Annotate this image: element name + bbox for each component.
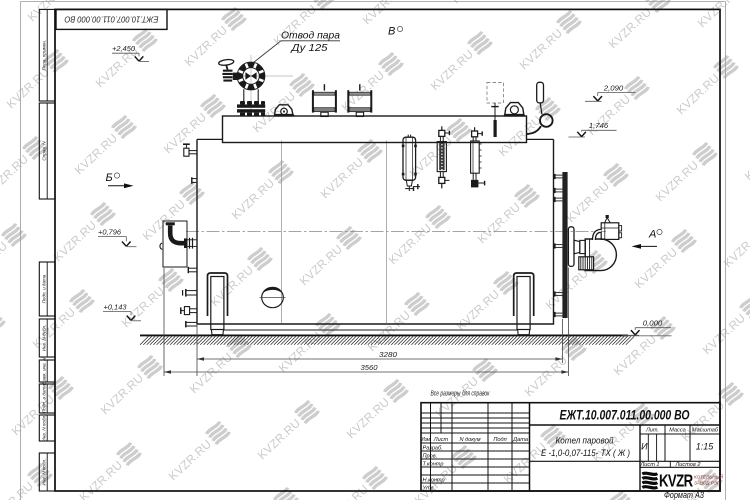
svg-text:KVZR.RU: KVZR.RU xyxy=(187,350,235,397)
svg-text:KVZR.RU: KVZR.RU xyxy=(140,197,188,244)
svg-text:В: В xyxy=(388,26,395,38)
svg-text:KVZR.RU: KVZR.RU xyxy=(653,158,701,205)
svg-text:Пров.: Пров. xyxy=(423,453,438,459)
svg-text:KVZR.RU: KVZR.RU xyxy=(632,245,680,292)
svg-text:KVZR.RU: KVZR.RU xyxy=(522,353,570,400)
svg-text:ЗАВОД РЭП: ЗАВОД РЭП xyxy=(694,481,721,486)
svg-text:Подп: Подп xyxy=(493,437,506,443)
svg-text:Листов 2: Листов 2 xyxy=(674,462,701,468)
svg-text:2,090: 2,090 xyxy=(603,83,624,92)
svg-text:Отвод пара: Отвод пара xyxy=(281,30,340,42)
svg-text:Б: Б xyxy=(106,172,113,184)
svg-text:N докум: N докум xyxy=(459,437,480,443)
svg-text:KVZR.RU: KVZR.RU xyxy=(674,71,722,118)
svg-text:KVZR.RU: KVZR.RU xyxy=(517,26,565,73)
svg-text:KVZR.RU: KVZR.RU xyxy=(4,65,52,112)
svg-text:Перв. примен.: Перв. примен. xyxy=(41,40,46,71)
svg-text:Инв. N подл.: Инв. N подл. xyxy=(41,415,46,442)
svg-text:+0,796: +0,796 xyxy=(98,227,122,236)
svg-text:KVZR.RU: KVZR.RU xyxy=(182,23,230,70)
svg-text:Лист: Лист xyxy=(433,437,449,443)
svg-text:KVZR.RU: KVZR.RU xyxy=(386,221,434,268)
svg-text:KVZR.RU: KVZR.RU xyxy=(51,218,99,265)
svg-text:Н.контр: Н.контр xyxy=(423,477,445,483)
svg-text:KVZR.RU: KVZR.RU xyxy=(255,416,303,463)
svg-text:Лит.: Лит. xyxy=(645,428,659,434)
svg-text:KVZR.RU: KVZR.RU xyxy=(360,0,408,27)
svg-text:KVZR.RU: KVZR.RU xyxy=(449,0,497,6)
svg-text:KVZR.RU: KVZR.RU xyxy=(475,200,523,247)
svg-text:Подп. и дата: Подп. и дата xyxy=(41,274,46,303)
svg-text:Формат А3: Формат А3 xyxy=(664,490,704,500)
svg-text:KVZR.RU: KVZR.RU xyxy=(229,176,277,223)
svg-text:KVZR.RU: KVZR.RU xyxy=(501,440,549,487)
svg-text:KVZR.RU: KVZR.RU xyxy=(585,92,633,139)
svg-text:КОТЕЛЬНЫЙ: КОТЕЛЬНЫЙ xyxy=(694,473,724,480)
svg-text:KVZR: KVZR xyxy=(659,471,693,491)
svg-text:Дата: Дата xyxy=(512,437,528,443)
svg-text:Справ. N: Справ. N xyxy=(41,141,46,161)
svg-text:KVZR.RU: KVZR.RU xyxy=(77,458,125,500)
svg-text:KVZR.RU: KVZR.RU xyxy=(98,371,146,418)
svg-text:KVZR.RU: KVZR.RU xyxy=(318,155,366,202)
svg-text:KVZR.RU: KVZR.RU xyxy=(166,437,214,484)
svg-text:ЕЖТ.10.007.011.00.000 ВО: ЕЖТ.10.007.011.00.000 ВО xyxy=(64,15,158,25)
svg-text:KVZR.RU: KVZR.RU xyxy=(695,0,743,30)
svg-text:KVZR.RU: KVZR.RU xyxy=(564,179,612,226)
svg-text:3280: 3280 xyxy=(379,350,397,359)
svg-text:Лист 1: Лист 1 xyxy=(639,462,659,468)
svg-text:Ду 125: Ду 125 xyxy=(290,42,327,54)
svg-text:KVZR.RU: KVZR.RU xyxy=(0,152,31,199)
svg-text:KVZR.RU: KVZR.RU xyxy=(344,395,392,442)
svg-text:3560: 3560 xyxy=(361,363,378,372)
svg-text:Инв. N подл.: Инв. N подл. xyxy=(41,459,46,486)
svg-text:KVZR.RU: KVZR.RU xyxy=(365,308,413,355)
svg-text:ЕЖТ.10.007.011.00.000 ВО: ЕЖТ.10.007.011.00.000 ВО xyxy=(560,408,690,423)
svg-text:KVZR.RU: KVZR.RU xyxy=(0,479,36,500)
svg-text:Т.контр: Т.контр xyxy=(423,461,444,467)
svg-text:0,000: 0,000 xyxy=(643,319,663,328)
svg-text:KVZR.RU: KVZR.RU xyxy=(30,305,78,352)
svg-text:KVZR.RU: KVZR.RU xyxy=(339,68,387,115)
svg-text:+2,450: +2,450 xyxy=(112,44,135,53)
svg-text:KVZR.RU: KVZR.RU xyxy=(407,134,455,181)
svg-text:И: И xyxy=(641,442,648,452)
svg-text:1,746: 1,746 xyxy=(589,121,609,130)
svg-text:KVZR.RU: KVZR.RU xyxy=(496,113,544,160)
svg-text:KVZR.RU: KVZR.RU xyxy=(208,263,256,310)
svg-text:Инв. N дубл.: Инв. N дубл. xyxy=(41,325,46,352)
svg-text:Изм: Изм xyxy=(421,437,430,443)
svg-text:Масса: Масса xyxy=(669,428,686,434)
svg-text:1:15: 1:15 xyxy=(696,442,715,452)
svg-text:+0,143: +0,143 xyxy=(104,302,127,311)
svg-text:KVZR.RU: KVZR.RU xyxy=(161,110,209,157)
svg-text:Все размеры для справок: Все размеры для справок xyxy=(431,389,490,398)
svg-text:KVZR.RU: KVZR.RU xyxy=(606,5,654,52)
svg-text:KVZR.RU: KVZR.RU xyxy=(428,47,476,94)
svg-text:Утв.: Утв. xyxy=(422,485,436,491)
svg-text:А: А xyxy=(648,229,656,241)
svg-text:Разраб.: Разраб. xyxy=(423,445,443,451)
svg-text:KVZR.RU: KVZR.RU xyxy=(742,137,750,184)
svg-text:KVZR.RU: KVZR.RU xyxy=(297,242,345,289)
svg-text:KVZR.RU: KVZR.RU xyxy=(0,239,10,286)
svg-text:Взам. инв. N: Взам. инв. N xyxy=(41,357,46,384)
svg-text:Котел паровой: Котел паровой xyxy=(556,436,614,446)
svg-text:KVZR.RU: KVZR.RU xyxy=(72,131,120,178)
svg-text:Подп. и дата: Подп. и дата xyxy=(41,384,46,413)
svg-text:KVZR.RU: KVZR.RU xyxy=(454,287,502,334)
svg-text:Масштаб: Масштаб xyxy=(692,428,719,434)
svg-text:KVZR.RU: KVZR.RU xyxy=(700,311,748,358)
svg-text:Е -1,0-0,07-115- ТХ ( Ж ): Е -1,0-0,07-115- ТХ ( Ж ) xyxy=(541,448,630,458)
